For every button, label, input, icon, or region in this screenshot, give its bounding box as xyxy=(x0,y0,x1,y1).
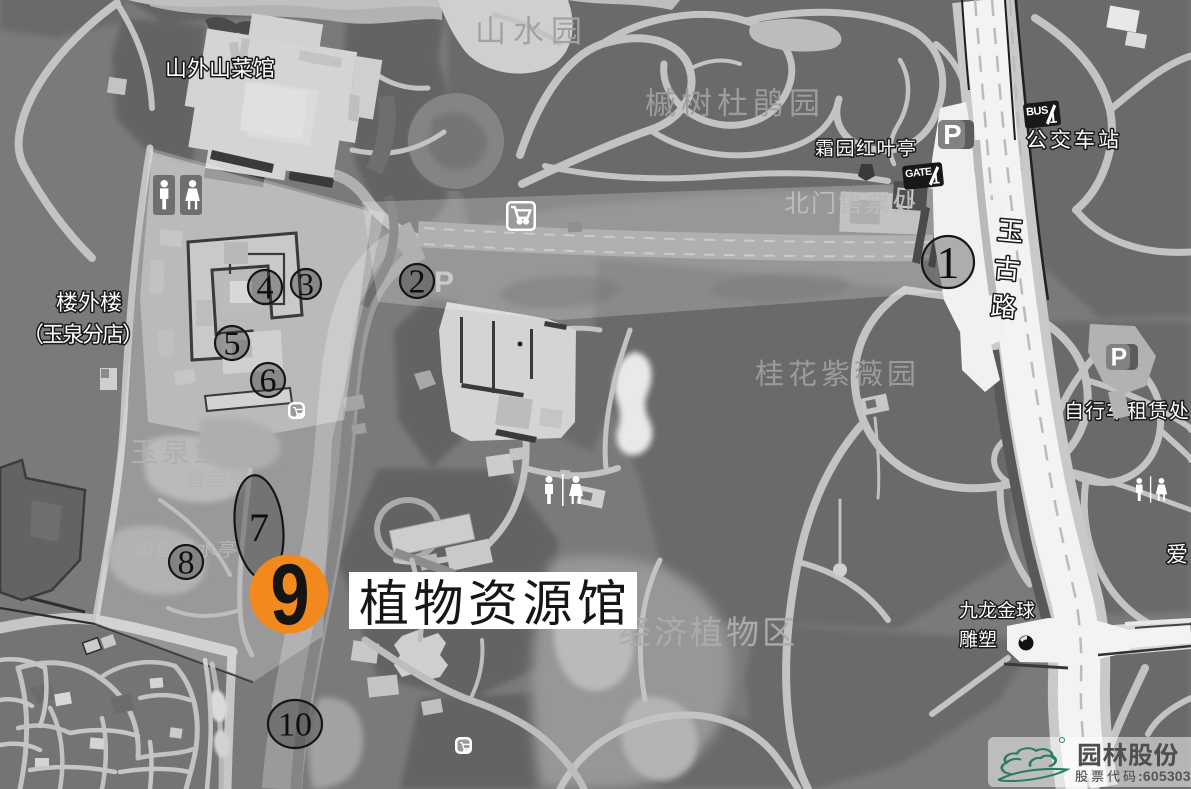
svg-text:8: 8 xyxy=(178,545,195,582)
svg-text::605303: :605303 xyxy=(1138,768,1191,784)
svg-text:7: 7 xyxy=(249,505,269,550)
svg-text:BUS: BUS xyxy=(1026,104,1049,118)
svg-text:P: P xyxy=(434,266,454,299)
svg-text:4: 4 xyxy=(257,270,274,307)
svg-text:1: 1 xyxy=(1048,110,1058,127)
svg-text:3: 3 xyxy=(298,266,314,302)
svg-text:6: 6 xyxy=(260,363,277,400)
svg-text:1: 1 xyxy=(937,237,960,288)
svg-text:5: 5 xyxy=(224,326,241,363)
svg-text:P: P xyxy=(943,119,961,150)
svg-text:P: P xyxy=(1111,344,1127,371)
svg-text:2: 2 xyxy=(409,264,426,301)
svg-text:10: 10 xyxy=(278,707,312,744)
svg-text:9: 9 xyxy=(270,546,309,642)
